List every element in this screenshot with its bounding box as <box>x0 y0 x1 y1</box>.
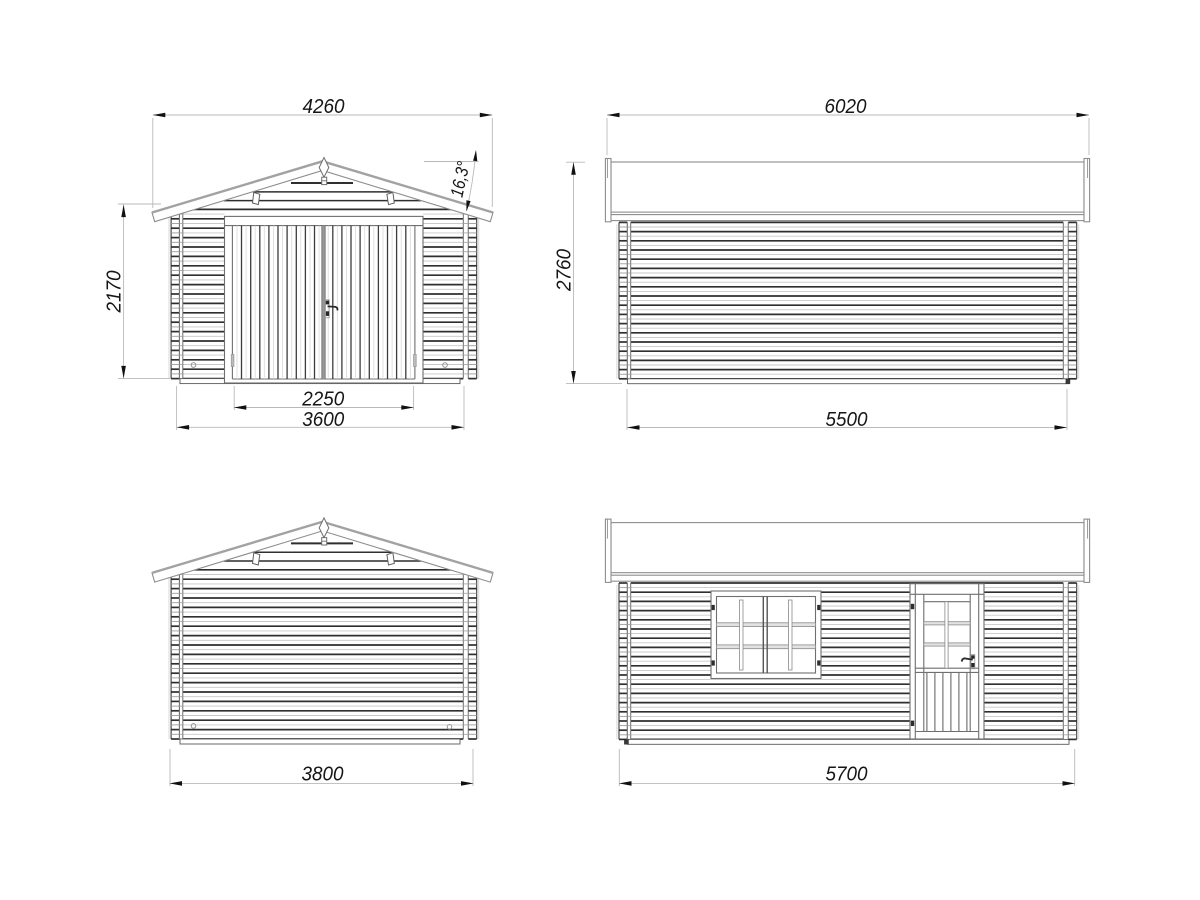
svg-text:2250: 2250 <box>301 389 344 411</box>
svg-text:3800: 3800 <box>302 764 344 786</box>
svg-text:6020: 6020 <box>825 96 867 118</box>
svg-text:4260: 4260 <box>303 96 345 118</box>
svg-text:5700: 5700 <box>826 764 868 786</box>
svg-text:2760: 2760 <box>553 249 575 292</box>
svg-text:2170: 2170 <box>104 271 126 314</box>
svg-text:5500: 5500 <box>826 409 868 431</box>
svg-text:3600: 3600 <box>302 409 344 431</box>
